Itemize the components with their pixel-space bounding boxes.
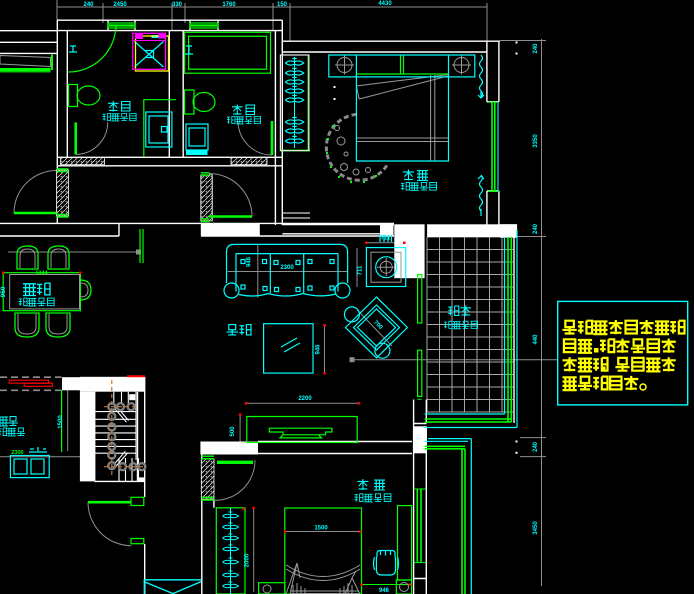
svg-text:2200: 2200 <box>298 396 312 402</box>
svg-text:2300: 2300 <box>280 265 294 271</box>
svg-text:950: 950 <box>0 286 7 297</box>
svg-text:240: 240 <box>83 2 94 8</box>
svg-text:3450: 3450 <box>533 521 539 535</box>
svg-text:150: 150 <box>277 2 288 8</box>
svg-text:440: 440 <box>533 334 539 345</box>
svg-text:1500: 1500 <box>314 526 328 532</box>
svg-text:240: 240 <box>533 441 539 452</box>
svg-text:3350: 3350 <box>533 134 539 148</box>
svg-text:330: 330 <box>172 2 183 8</box>
svg-text:711: 711 <box>381 236 391 242</box>
svg-text:2450: 2450 <box>113 2 127 8</box>
svg-text:4430: 4430 <box>378 1 392 7</box>
svg-text:2300: 2300 <box>11 450 23 456</box>
svg-text:946: 946 <box>316 344 322 355</box>
svg-text:946: 946 <box>379 588 390 594</box>
svg-text:1760: 1760 <box>222 2 236 8</box>
svg-text:500: 500 <box>230 426 236 437</box>
svg-text:240: 240 <box>533 43 539 54</box>
svg-text:946: 946 <box>247 256 253 267</box>
svg-text:1500: 1500 <box>58 415 64 429</box>
svg-text:240: 240 <box>533 223 539 234</box>
svg-text:711: 711 <box>358 265 364 275</box>
svg-text:1344: 1344 <box>35 271 48 277</box>
svg-text:2000: 2000 <box>245 553 251 567</box>
